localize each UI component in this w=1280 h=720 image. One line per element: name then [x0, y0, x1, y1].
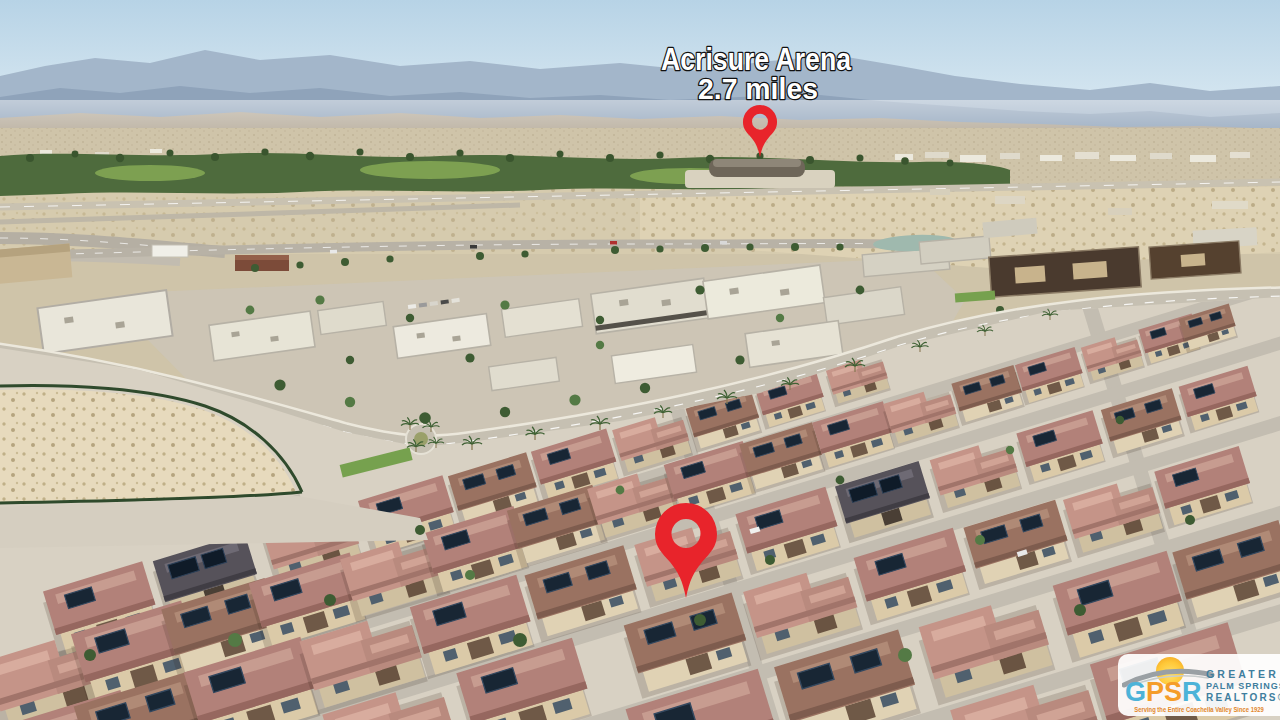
- brand-tagline: Serving the Entire Coachella Valley Sinc…: [1126, 706, 1272, 713]
- brand-logo: GPSR GREATER PALM SPRINGS REALTORS® Serv…: [1118, 654, 1280, 716]
- arena-distance-label: 2.7 miles: [698, 72, 818, 105]
- gpsr-acronym: GPSR: [1125, 679, 1202, 706]
- aerial-photo-stage: Acrisure Arena 2.7 miles GPSR GREATER PA…: [0, 0, 1280, 720]
- aerial-photograph: Acrisure Arena 2.7 miles: [0, 0, 1280, 720]
- brand-name: GREATER PALM SPRINGS REALTORS®: [1206, 669, 1280, 703]
